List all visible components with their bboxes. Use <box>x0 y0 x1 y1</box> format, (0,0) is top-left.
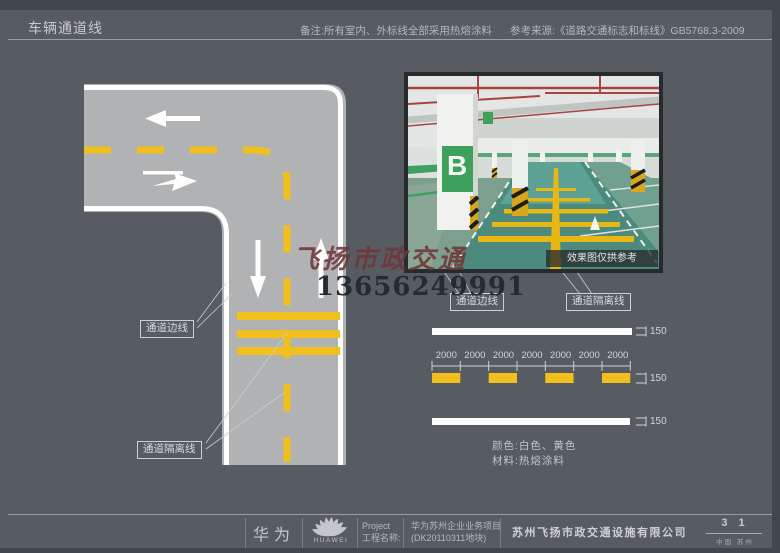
width-label-1: 150 <box>650 326 667 337</box>
spec-sheet-page: { "header": { "title": "车辆通道线", "note": … <box>0 0 780 553</box>
segment-dimension-labels: 2000 2000 2000 2000 2000 2000 2000 <box>432 350 632 361</box>
separator-line-sample <box>432 373 630 383</box>
huawei-logo-icon <box>311 517 348 540</box>
dimension-label: 2000 <box>461 350 490 361</box>
dimension-label: 2000 <box>432 350 461 361</box>
dimension-drawings <box>432 327 646 427</box>
dimension-label: 2000 <box>518 350 547 361</box>
edge-line-sample <box>432 328 632 335</box>
width-brackets <box>636 327 646 427</box>
width-label-2: 150 <box>650 373 667 384</box>
dimension-line <box>432 361 630 371</box>
photo-caption: 效果图仅拱参考 <box>546 250 658 267</box>
callout-separator-line: 通道隔离线 <box>137 441 202 459</box>
photo-pillar-2 <box>512 140 528 216</box>
separator-cross-bars <box>237 312 340 355</box>
callout-edge-line: 通道边线 <box>140 320 194 338</box>
watermark-phone: 13656249991 <box>316 272 526 302</box>
pillar-sign-b-label: B <box>447 150 467 182</box>
dimension-label: 2000 <box>575 350 604 361</box>
edge-line-sample-2 <box>432 418 630 425</box>
watermark-company: 飞扬市政交通 <box>293 239 483 276</box>
photo-pillar-3 <box>631 140 645 192</box>
photo-callout-separator-line: 通道隔离线 <box>566 293 631 311</box>
dimension-label: 2000 <box>603 350 632 361</box>
dimension-label: 2000 <box>489 350 518 361</box>
dimension-label: 2000 <box>546 350 575 361</box>
width-label-3: 150 <box>650 416 667 427</box>
